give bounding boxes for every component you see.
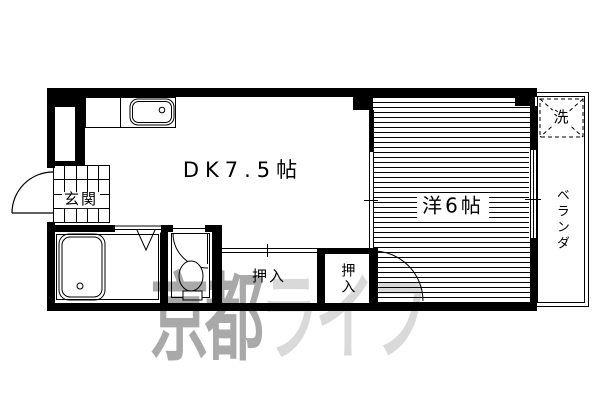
pipe-shaft-interior (55, 107, 75, 161)
wall-bath-toilet (160, 225, 168, 310)
wall-dk-western-stub-top (353, 95, 373, 110)
closet1-label: 押入 (252, 269, 286, 285)
wall-closet-divider (317, 248, 325, 303)
sink-drain-icon (159, 107, 165, 113)
wall-western-right-stub-top (515, 95, 535, 106)
wall-left-lower (47, 222, 55, 310)
wall-closet2-top (325, 248, 369, 254)
wall-top (47, 88, 537, 97)
entrance-door-arc (12, 172, 53, 213)
toilet-bowl-icon (179, 261, 203, 291)
closet1-sliding-track (222, 244, 317, 257)
toilet-room (168, 229, 212, 301)
dk-room-label: DK7.5帖 (183, 159, 303, 181)
entrance-door (12, 172, 53, 213)
western-room-label: 洋6帖 (417, 194, 489, 219)
wall-toilet-right (212, 225, 222, 310)
genkan-label: 玄関 (62, 192, 100, 208)
wall-dk-western (369, 110, 374, 152)
closet2-label: 押入 (340, 263, 355, 295)
wall-closet2-right (369, 248, 378, 303)
toilet-base-icon (183, 291, 202, 300)
bathroom-folding-door (115, 225, 161, 251)
bathtub (59, 234, 105, 300)
floorplan-canvas: DK7.5帖 洋6帖 玄関 押入 押入 洗 ベランダ 京都ライフ (0, 0, 600, 400)
wall-bottom (47, 303, 537, 311)
bathtub-drain-icon (77, 283, 83, 289)
kitchen-sink (130, 99, 174, 125)
folding-door-v-icon (137, 230, 155, 250)
washer-label: 洗 (552, 110, 569, 126)
wall-bathroom-top (47, 225, 117, 232)
veranda-label: ベランダ (554, 188, 568, 252)
